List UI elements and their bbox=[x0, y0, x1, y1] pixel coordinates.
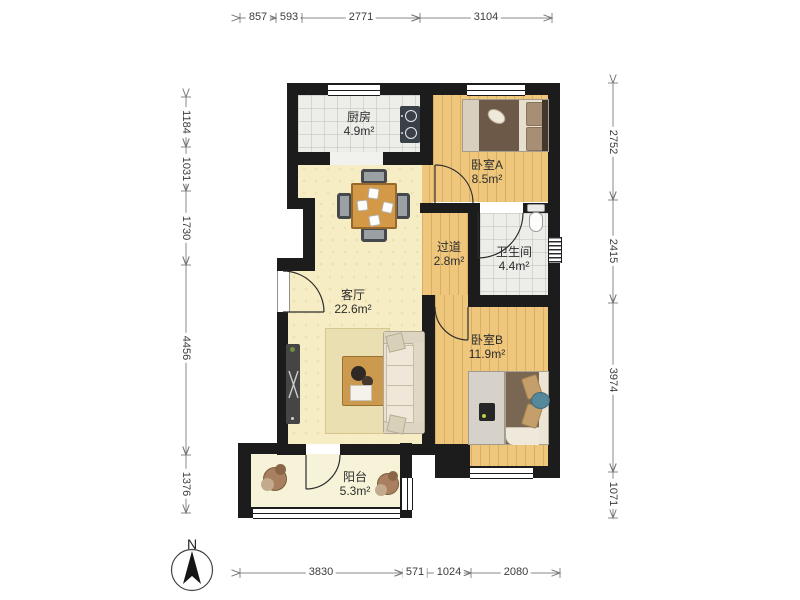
dining-chair bbox=[395, 193, 410, 219]
kitchen-window bbox=[328, 84, 380, 96]
room-area: 22.6m² bbox=[334, 302, 371, 316]
north-label: N bbox=[187, 536, 197, 552]
plant bbox=[261, 464, 289, 494]
dining-chair bbox=[361, 227, 387, 242]
room-area: 5.3m² bbox=[340, 484, 371, 498]
sofa bbox=[383, 331, 425, 434]
plate bbox=[368, 214, 381, 227]
plant-icon bbox=[375, 484, 387, 496]
room-label-living-room: 客厅 22.6m² bbox=[334, 288, 371, 316]
sofa-cushion bbox=[386, 365, 414, 386]
wall bbox=[468, 203, 480, 307]
dim-right-3: 3974 bbox=[607, 365, 619, 395]
room-label-balcony: 阳台 5.3m² bbox=[340, 470, 371, 498]
toilet bbox=[527, 204, 545, 234]
plant-icon bbox=[290, 347, 295, 352]
room-name: 阳台 bbox=[343, 470, 367, 484]
bed-a-headboard bbox=[542, 100, 548, 151]
dining-chair bbox=[337, 193, 352, 219]
burner-icon bbox=[405, 127, 417, 139]
bedroom-b-door-threshold bbox=[435, 295, 468, 307]
dining-chair bbox=[361, 169, 387, 184]
bedroom-a-window bbox=[467, 84, 525, 96]
wall bbox=[238, 443, 277, 454]
wall bbox=[468, 295, 560, 307]
wall bbox=[287, 152, 330, 165]
bathroom-window bbox=[548, 237, 562, 263]
room-name: 客厅 bbox=[341, 288, 365, 302]
wall bbox=[287, 95, 298, 198]
bed-stool bbox=[531, 392, 550, 409]
tv-box bbox=[479, 403, 495, 421]
plant-icon bbox=[261, 478, 274, 491]
wall bbox=[420, 95, 433, 165]
dim-left-3: 1730 bbox=[180, 213, 192, 243]
wall bbox=[277, 258, 315, 271]
plate bbox=[381, 201, 394, 214]
room-area: 8.5m² bbox=[472, 172, 503, 186]
wall bbox=[277, 444, 306, 455]
sofa-cushion bbox=[386, 385, 414, 406]
balcony-window bbox=[253, 508, 400, 519]
room-label-bedroom-a: 卧室A 8.5m² bbox=[471, 158, 503, 186]
stove bbox=[400, 106, 420, 143]
indicator-dot-icon bbox=[482, 414, 486, 418]
coffee-table bbox=[342, 356, 385, 406]
room-name: 厨房 bbox=[347, 110, 371, 124]
bed-b bbox=[505, 371, 549, 445]
throw-pillow bbox=[386, 414, 406, 434]
bed-a-blanket bbox=[479, 100, 519, 151]
balcony-side-window bbox=[401, 478, 413, 510]
dim-bottom-1: 3830 bbox=[306, 566, 336, 578]
room-name: 卧室B bbox=[471, 333, 503, 347]
room-area: 2.8m² bbox=[434, 254, 465, 268]
toilet-tank bbox=[527, 204, 545, 212]
plate bbox=[367, 187, 379, 199]
stove-knob-icon bbox=[401, 115, 403, 117]
dim-left-5: 1376 bbox=[180, 469, 192, 499]
tray bbox=[350, 385, 372, 401]
knob-icon bbox=[291, 417, 294, 420]
plant bbox=[375, 471, 401, 499]
bed-a bbox=[462, 99, 549, 152]
room-label-hallway: 过道 2.8m² bbox=[434, 240, 465, 268]
burner-icon bbox=[405, 110, 417, 122]
room-label-kitchen: 厨房 4.9m² bbox=[344, 110, 375, 138]
dim-right-2: 2415 bbox=[607, 236, 619, 266]
dim-top-1: 857 bbox=[246, 11, 270, 23]
kitchen-opening-threshold bbox=[330, 152, 383, 165]
room-name: 卧室A bbox=[471, 158, 503, 172]
dim-bottom-4: 2080 bbox=[501, 566, 531, 578]
wardrobe bbox=[468, 371, 505, 445]
toilet-bowl bbox=[529, 212, 543, 232]
room-name: 过道 bbox=[437, 240, 461, 254]
dim-left-1: 1184 bbox=[180, 107, 192, 137]
dim-right-4: 1071 bbox=[607, 479, 619, 509]
dim-bottom-3: 1024 bbox=[434, 566, 464, 578]
dim-top-3: 2771 bbox=[346, 11, 376, 23]
room-area: 4.9m² bbox=[344, 124, 375, 138]
room-name: 卫生间 bbox=[496, 245, 532, 259]
stove-knob-icon bbox=[401, 132, 403, 134]
plant-icon bbox=[388, 471, 398, 481]
north-arrow-icon bbox=[172, 550, 213, 591]
room-label-bedroom-b: 卧室B 11.9m² bbox=[469, 333, 505, 361]
tv-stand bbox=[286, 344, 300, 424]
dim-left-2: 1031 bbox=[180, 154, 192, 184]
plant-icon bbox=[275, 464, 286, 475]
dim-bottom-2: 571 bbox=[403, 566, 427, 578]
dim-right-1: 2752 bbox=[607, 127, 619, 157]
wall bbox=[548, 95, 560, 478]
entry-door-frame bbox=[277, 271, 290, 312]
room-label-bathroom: 卫生间 4.4m² bbox=[496, 245, 532, 273]
floor-plan-canvas: 厨房 4.9m² 卧室A 8.5m² 过道 2.8m² 卫生间 4.4m² 客厅… bbox=[0, 0, 800, 600]
dining-set bbox=[337, 169, 411, 243]
bed-b-sheet-fold bbox=[506, 427, 539, 445]
dining-table bbox=[351, 183, 397, 229]
dim-top-4: 3104 bbox=[471, 11, 501, 23]
dim-left-4: 4456 bbox=[180, 333, 192, 363]
room-area: 11.9m² bbox=[469, 347, 505, 361]
room-area: 4.4m² bbox=[499, 259, 530, 273]
plate bbox=[356, 199, 368, 211]
bedroom-b-window bbox=[470, 467, 533, 479]
bed-a-sheet bbox=[463, 100, 480, 151]
dim-top-2: 593 bbox=[277, 11, 301, 23]
